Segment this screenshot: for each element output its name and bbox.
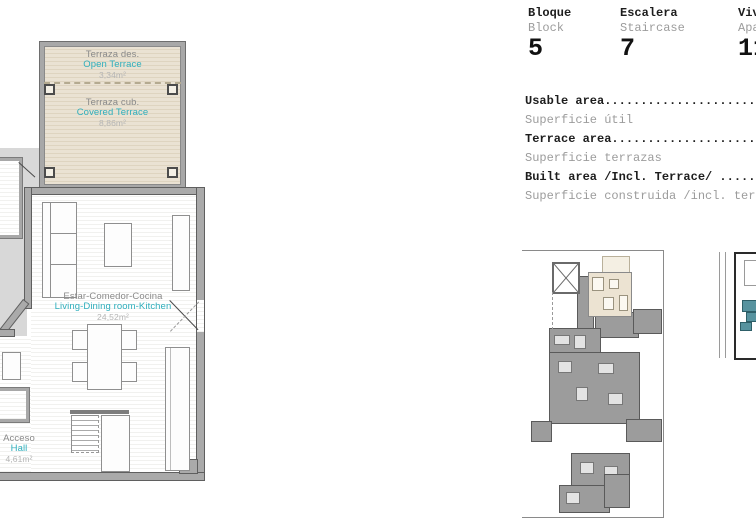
unit-detail	[619, 295, 628, 311]
building-mass	[559, 485, 610, 513]
mass-detail	[554, 335, 570, 345]
stair-shaft	[552, 262, 580, 294]
building-mass	[549, 352, 640, 424]
mass-detail	[608, 393, 623, 405]
map-building-shape	[742, 300, 756, 312]
building-mass	[633, 309, 662, 334]
mass-detail	[598, 363, 614, 374]
map-building-shape	[740, 322, 752, 331]
building-mass	[604, 474, 630, 508]
unit-detail	[592, 277, 604, 291]
unit-detail	[609, 279, 619, 289]
mass-detail	[574, 335, 586, 349]
building-mass	[626, 419, 662, 442]
unit-detail	[603, 297, 614, 310]
key-plan-dash-line	[552, 292, 553, 330]
key-plan-frame-right	[663, 250, 664, 518]
map-outline-shape	[744, 260, 756, 286]
key-plan-frame-bottom	[522, 517, 664, 518]
shaft-x-icon	[554, 264, 578, 292]
mass-detail	[580, 462, 594, 474]
floorplan-page: { "plan": { "terrace_open": {"es": "Terr…	[0, 0, 756, 528]
key-plan	[0, 0, 756, 528]
mass-detail	[566, 492, 580, 504]
mass-detail	[558, 361, 572, 373]
building-mass	[531, 421, 552, 442]
map-building-shape	[746, 312, 756, 322]
mini-map-box	[734, 252, 756, 360]
mini-map	[716, 250, 756, 362]
key-plan-frame-top	[522, 250, 664, 251]
mini-map-spine	[719, 252, 726, 358]
mass-detail	[576, 387, 588, 401]
highlighted-unit	[588, 272, 632, 317]
